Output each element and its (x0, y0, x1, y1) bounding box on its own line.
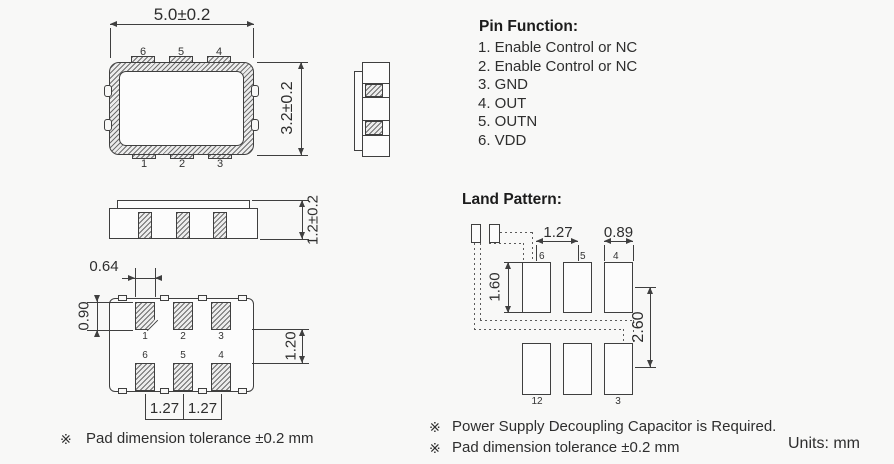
reference-mark: ※ (429, 419, 441, 436)
extension-line (260, 239, 309, 240)
pad-label: 6 (135, 350, 155, 361)
land-pad-label: 3 (611, 396, 625, 407)
castellation-notch (104, 119, 112, 131)
bottom-pad-5 (173, 363, 193, 391)
land-pad-bottom-middle (563, 343, 592, 395)
bottom-pad-2 (173, 302, 193, 330)
pad-label: 5 (173, 350, 193, 361)
side-pad (365, 121, 383, 135)
land-pad-label: 12 (525, 396, 549, 407)
reference-mark: ※ (429, 440, 441, 457)
land-pattern-title: Land Pattern: (462, 191, 562, 209)
pin-label: 1 (134, 158, 154, 170)
extension-line (536, 245, 537, 261)
land-pad-bottom-left (522, 343, 551, 395)
pitch-dimension-label: 1.27 (184, 400, 221, 417)
bottom-pad-4 (211, 363, 231, 391)
arrowhead (505, 306, 511, 313)
land-pad-label: 4 (613, 251, 625, 262)
land-pad-label: 5 (580, 251, 592, 262)
arrowhead (505, 262, 511, 269)
datasheet-drawing: 5.0±0.2 6 5 4 1 2 3 3.2±0.2 (0, 0, 894, 464)
land-pad-height-dimension-label: 1.60 (487, 272, 504, 301)
castellation-notch (251, 119, 259, 131)
extension-line (252, 363, 309, 364)
body-line (362, 135, 390, 136)
pad-label: 4 (211, 350, 231, 361)
arrowhead (94, 330, 100, 337)
arrowhead (94, 295, 100, 302)
land-pad-4 (604, 262, 633, 313)
body-outline-dashed (474, 329, 623, 330)
pin-function-item: 6. VDD (478, 132, 637, 151)
leader-dashed-line (523, 243, 524, 262)
body-line (362, 97, 390, 98)
leader-dashed-line (532, 232, 533, 262)
note-decoupling-capacitor: Power Supply Decoupling Capacitor is Req… (452, 418, 776, 435)
arrowhead (128, 275, 135, 281)
pin-function-item: 1. Enable Control or NC (478, 39, 637, 58)
reference-pad (471, 224, 481, 243)
pad-height-dimension-label: 0.90 (76, 301, 93, 330)
front-pad (176, 212, 190, 239)
edge-notch (160, 295, 169, 301)
front-pad (213, 212, 227, 239)
pad-label: 1 (135, 331, 155, 342)
extension-line (221, 394, 222, 420)
arrowhead (110, 21, 117, 27)
extension-line (110, 28, 111, 58)
pad-width-dimension-label: 0.64 (82, 258, 126, 275)
land-row-pitch-dimension-label: 2.60 (630, 311, 648, 342)
pin-function-item: 3. GND (478, 76, 637, 95)
reference-pad (489, 224, 500, 243)
dimension-line (650, 287, 651, 367)
units-label: Units: mm (788, 435, 860, 453)
arrowhead (247, 21, 254, 27)
castellation-notch (104, 85, 112, 97)
extension-line (87, 302, 133, 303)
arrowhead (626, 238, 633, 244)
pin-label: 2 (172, 158, 192, 170)
arrowhead (571, 238, 578, 244)
leader-dashed-line (480, 243, 481, 320)
height-dimension-label: 3.2±0.2 (279, 81, 297, 134)
dimension-line (110, 24, 254, 25)
arrowhead (298, 148, 304, 155)
side-pad (365, 84, 383, 97)
note-pad-tolerance-left: Pad dimension tolerance ±0.2 mm (86, 430, 314, 447)
extension-line (635, 367, 656, 368)
body-outline-dashed (480, 320, 633, 321)
leader-dashed-line (489, 243, 523, 244)
pin-function-title: Pin Function: (479, 18, 578, 36)
extension-line (604, 245, 605, 261)
body-outline-dashed (623, 329, 624, 343)
extension-line (135, 268, 136, 297)
extension-line (253, 28, 254, 58)
edge-notch (160, 388, 169, 394)
front-pad (138, 212, 152, 239)
arrowhead (155, 275, 162, 281)
note-pad-tolerance-right: Pad dimension tolerance ±0.2 mm (452, 439, 680, 456)
package-side-body (362, 62, 390, 157)
land-pad-bottom-right (604, 343, 633, 395)
pitch-dimension-label: 1.27 (146, 400, 183, 417)
pad-label: 3 (211, 331, 231, 342)
leader-dashed-line (474, 243, 475, 329)
extension-line (257, 155, 308, 156)
bottom-pad-6 (135, 363, 155, 391)
castellation-notch (251, 85, 259, 97)
arrowhead (299, 329, 305, 336)
arrowhead (298, 62, 304, 69)
land-pad-label: 6 (539, 251, 551, 262)
pin-function-item: 5. OUTN (478, 113, 637, 132)
edge-notch (238, 388, 247, 394)
land-pad-6 (522, 262, 551, 313)
arrowhead (647, 287, 653, 294)
edge-notch (238, 295, 247, 301)
pin-function-item: 4. OUT (478, 95, 637, 114)
row-gap-dimension-label: 1.20 (283, 331, 300, 360)
extension-line (578, 245, 579, 261)
arrowhead (299, 356, 305, 363)
edge-notch (198, 388, 207, 394)
arrowhead (536, 238, 543, 244)
thickness-dimension-label: 1.2±0.2 (305, 195, 322, 245)
pin-label: 3 (210, 158, 230, 170)
pad-label: 2 (173, 331, 193, 342)
arrowhead (647, 360, 653, 367)
leader-dashed-line (500, 232, 532, 233)
arrowhead (604, 238, 611, 244)
pin-function-item: 2. Enable Control or NC (478, 58, 637, 77)
edge-notch (118, 388, 127, 394)
extension-line (155, 268, 156, 297)
land-pad-5 (563, 262, 592, 313)
package-lid (119, 71, 244, 146)
width-dimension-label: 5.0±0.2 (137, 5, 227, 25)
edge-notch (118, 295, 127, 301)
bottom-pad-3 (211, 302, 231, 330)
extension-line (633, 245, 634, 261)
dimension-line (145, 419, 222, 420)
dimension-line (301, 62, 302, 155)
pin-function-list: 1. Enable Control or NC 2. Enable Contro… (478, 39, 637, 150)
edge-notch (198, 295, 207, 301)
reference-mark: ※ (60, 431, 72, 448)
